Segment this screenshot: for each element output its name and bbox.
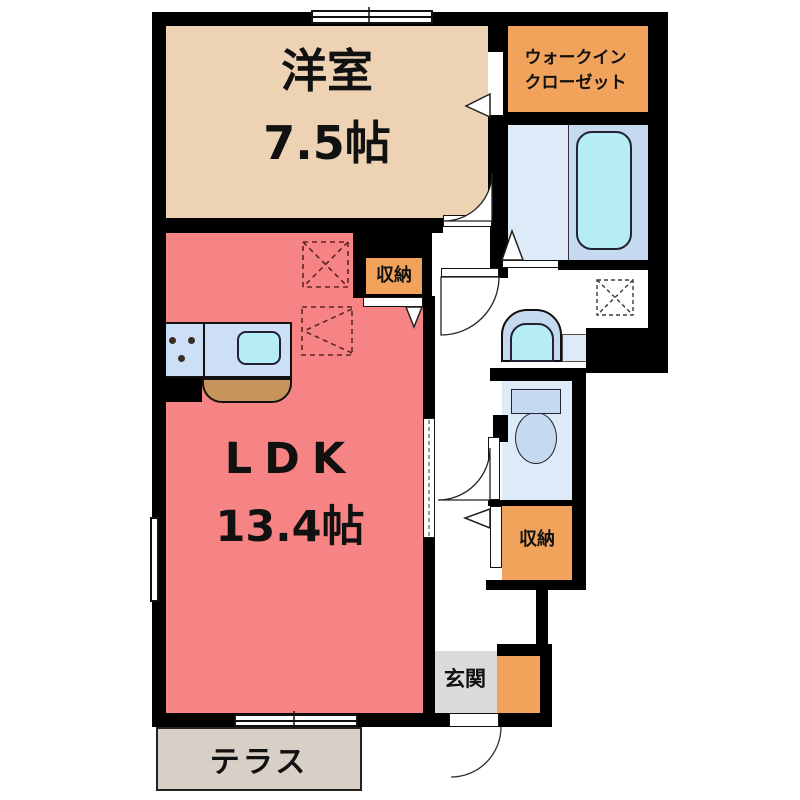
folding-door-bath bbox=[502, 260, 559, 268]
room-western-label: 洋室 bbox=[166, 46, 488, 97]
room-ldk-label: LDK bbox=[150, 436, 420, 483]
stove-burner-icon bbox=[169, 337, 176, 344]
door-arc-washroom bbox=[441, 277, 499, 335]
window-glass-line bbox=[312, 16, 432, 18]
walk-in-closet-label-line2: クローゼット bbox=[525, 73, 627, 93]
door-leaf-toilet bbox=[488, 437, 500, 500]
wall-segment bbox=[423, 296, 435, 420]
entrance-label: 玄関 bbox=[433, 668, 497, 691]
bathtub-icon bbox=[576, 131, 632, 250]
stove-burner-icon bbox=[178, 355, 185, 362]
kitchen-counter-divider bbox=[203, 322, 205, 378]
door-leaf-storage-lower bbox=[490, 506, 502, 568]
door-leaf-western bbox=[443, 215, 492, 227]
door-leaf-entrance bbox=[449, 713, 499, 727]
opening-arrow-storage-lower-icon bbox=[465, 509, 490, 528]
walk-in-closet-label: ウォークイン クローゼット bbox=[503, 46, 648, 95]
toilet-tank-icon bbox=[511, 389, 561, 414]
storage-lower-label: 収納 bbox=[502, 530, 572, 550]
kitchen-sink-icon bbox=[237, 331, 281, 365]
shoe-cabinet bbox=[497, 656, 540, 713]
wall-segment bbox=[152, 378, 202, 402]
washing-machine-area bbox=[597, 280, 633, 315]
wall-segment bbox=[486, 580, 586, 590]
wall-segment bbox=[648, 12, 668, 373]
room-western-size: 7.5帖 bbox=[166, 118, 488, 169]
washbasin-bowl-icon bbox=[510, 323, 554, 362]
wall-segment bbox=[586, 328, 668, 373]
kitchen-counter-front bbox=[202, 378, 292, 403]
wall-segment bbox=[490, 125, 505, 270]
walk-in-closet-label-line1: ウォークイン bbox=[525, 48, 627, 68]
door-storage-upper bbox=[363, 297, 423, 307]
door-arc-toilet bbox=[438, 448, 490, 500]
wall-segment bbox=[497, 644, 552, 656]
wall-segment bbox=[488, 500, 586, 506]
window-glass-line bbox=[235, 720, 357, 722]
opening-western-to-closet bbox=[488, 52, 503, 115]
wall-segment bbox=[152, 12, 166, 727]
toilet-icon bbox=[515, 412, 557, 464]
door-leaf-washroom bbox=[441, 268, 499, 277]
wall-segment bbox=[572, 373, 586, 590]
stove-burner-icon bbox=[188, 337, 195, 344]
terrace-label: テラス bbox=[156, 746, 362, 779]
wall-segment bbox=[558, 260, 668, 270]
storage-upper-label: 収納 bbox=[366, 258, 422, 294]
room-ldk-size: 13.4帖 bbox=[150, 504, 430, 551]
door-arc-entrance bbox=[451, 727, 501, 777]
wall-segment bbox=[503, 112, 668, 125]
floorplan: 洋室 7.5帖 LDK 13.4帖 ウォークイン クローゼット 収納 収納 玄関… bbox=[0, 0, 800, 800]
